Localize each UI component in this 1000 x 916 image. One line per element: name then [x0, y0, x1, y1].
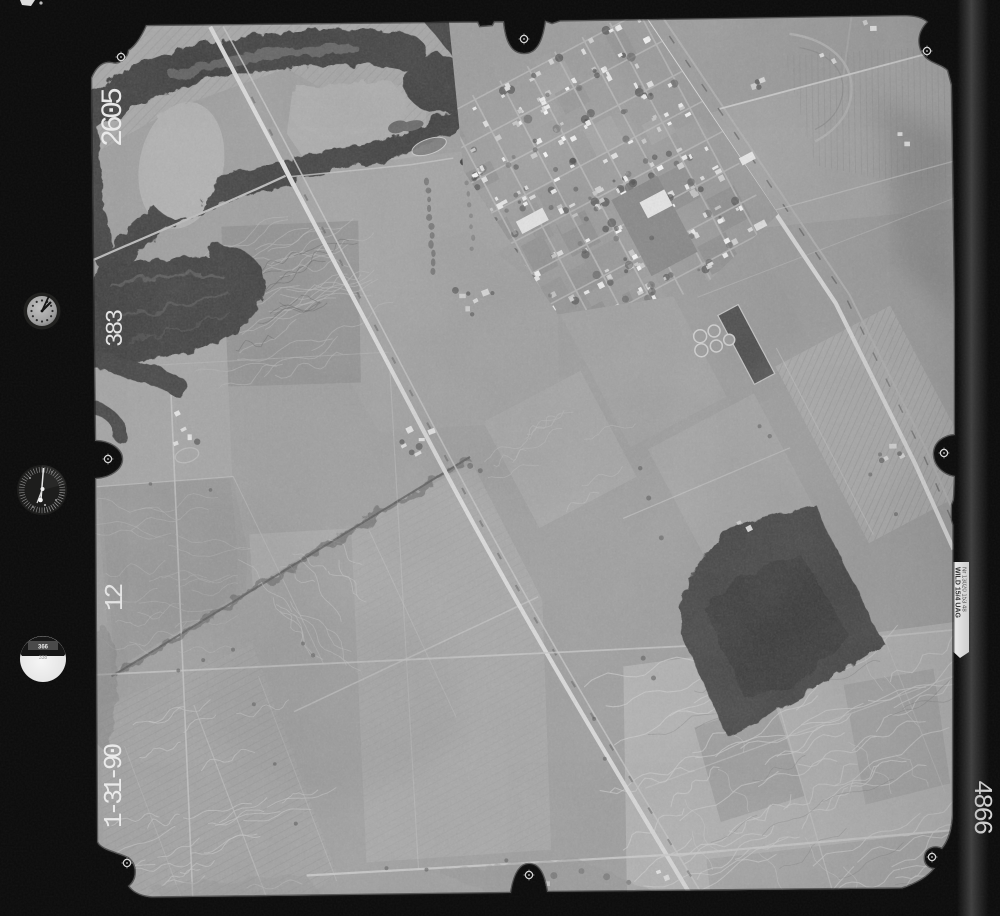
svg-text:338: 338 [39, 655, 48, 661]
svg-text:383: 383 [103, 310, 130, 347]
svg-text:2605: 2605 [97, 88, 131, 147]
svg-text:366: 366 [38, 645, 49, 651]
svg-text:1-31-90: 1-31-90 [99, 744, 129, 828]
svg-text:12: 12 [100, 584, 130, 611]
